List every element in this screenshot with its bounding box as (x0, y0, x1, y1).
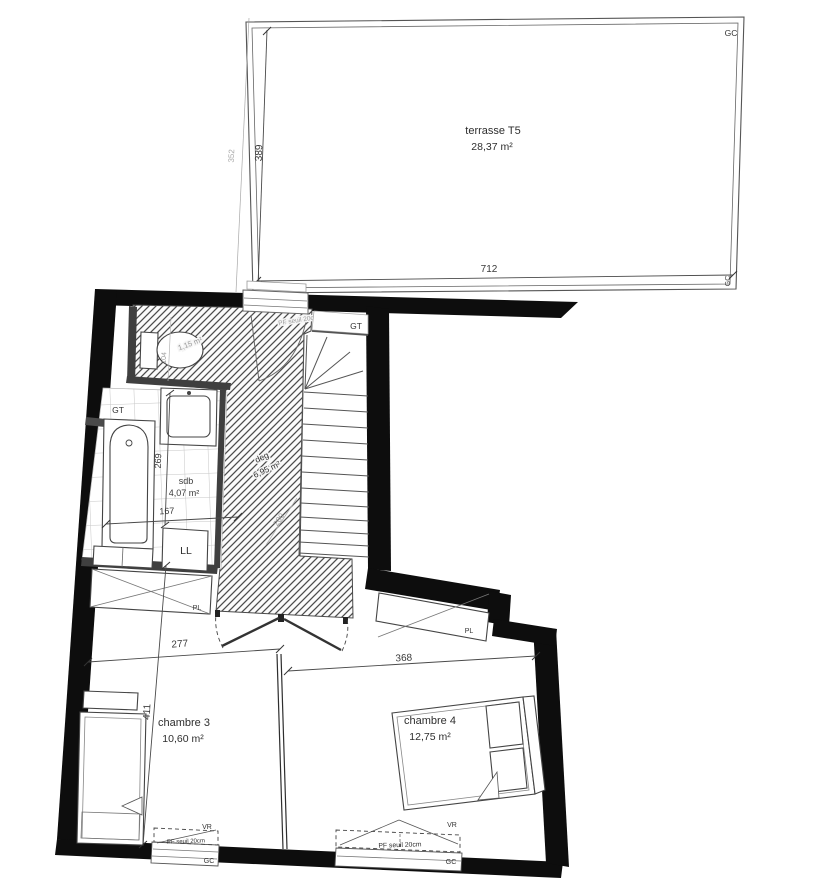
terrace-name: terrasse T5 (465, 125, 520, 137)
floor-plan: terrasse T5 28,37 m² GC GC 712 389 352 (0, 0, 831, 878)
washing-machine: LL (162, 528, 208, 571)
wall-link (492, 619, 557, 646)
hall-french-window (243, 281, 308, 314)
bedroom4-bed (392, 696, 545, 810)
bedroom4-gutter-label: GC (446, 859, 457, 866)
bedroom4-window: VR PF seuil 20cm GC (335, 820, 462, 871)
bathroom-area: 4,07 m² (169, 488, 200, 498)
washing-machine-label: LL (180, 545, 192, 557)
staircase (299, 334, 369, 557)
bathroom: GT LL sdb 4,07 m² 269 (81, 388, 242, 574)
svg-text:389: 389 (254, 144, 266, 161)
door-leaf-right (284, 619, 341, 650)
duct-left-label: GT (112, 405, 124, 415)
wall-stairs-right (366, 306, 391, 571)
stairs-duct-label: GT (350, 321, 362, 331)
bedroom4-sill-label: PF seuil 20cm (378, 841, 422, 850)
bedroom4-name: chambre 4 (404, 715, 456, 727)
bedroom4-dimensions: 368 (284, 652, 540, 675)
bedroom3-bed (77, 691, 146, 845)
svg-text:167: 167 (159, 506, 175, 517)
svg-text:269: 269 (153, 453, 164, 468)
svg-text:411: 411 (142, 703, 154, 720)
floor-plan-drawing: terrasse T5 28,37 m² GC GC 712 389 352 (0, 0, 831, 878)
bedroom4-shutter-label: VR (447, 822, 457, 829)
door-leaf-left (222, 618, 279, 646)
door-hinge-left (215, 610, 220, 617)
bedroom3-closet-label: PL (193, 605, 202, 612)
door-arc-left (216, 614, 223, 648)
terrace-outer-depth-dimension: 352 (227, 18, 249, 292)
terrace: terrasse T5 28,37 m² GC GC 712 389 352 (227, 17, 744, 293)
bathtub (102, 419, 155, 549)
tub-deck (93, 546, 153, 568)
partition-bedrooms (277, 654, 287, 849)
bedroom4-area: 12,75 m² (409, 731, 451, 743)
svg-text:352: 352 (227, 149, 236, 163)
bathroom-name: sdb (179, 476, 194, 486)
bedroom3-area: 10,60 m² (162, 733, 204, 745)
bedroom3-window: VR PF seuil 20cm GC (151, 824, 219, 866)
terrace-corner-label-top: GC (725, 28, 738, 38)
stairs-duct: GT (312, 311, 368, 335)
svg-text:712: 712 (481, 264, 498, 275)
bedroom3-name: chambre 3 (158, 717, 210, 729)
bedroom3-gutter-label: GC (204, 858, 215, 865)
bedroom3-closet: PL (90, 569, 212, 614)
svg-text:277: 277 (171, 638, 189, 650)
wc-dim: 104 (161, 352, 168, 364)
terrace-outer-edge (246, 17, 744, 293)
bedroom3-shutter-label: VR (202, 824, 212, 831)
svg-text:368: 368 (395, 652, 413, 664)
terrace-area: 28,37 m² (471, 141, 513, 153)
bedroom4-closet-label: PL (465, 628, 474, 635)
